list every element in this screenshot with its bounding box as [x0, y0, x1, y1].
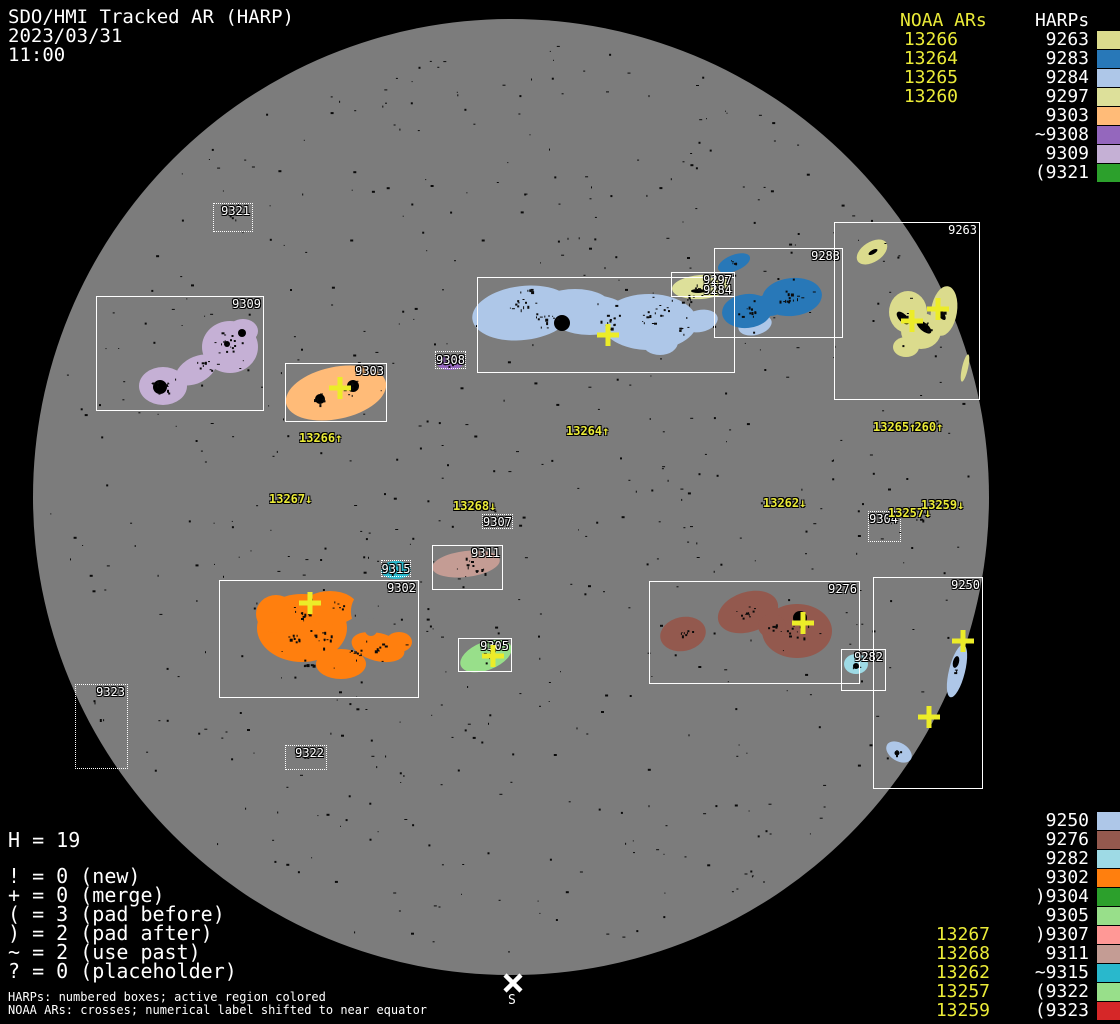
harp-color-swatch — [1097, 164, 1120, 182]
harp-color-swatch — [1097, 850, 1120, 868]
harp-box-9308: 9308 — [435, 351, 466, 369]
harp-number: 9284 — [958, 68, 1089, 87]
harp-color-swatch — [1097, 812, 1120, 830]
harp-box-label: 9263 — [948, 224, 977, 236]
harp-box-label: 9322 — [295, 747, 324, 759]
noaa-label-13266: 13266↑ — [299, 431, 342, 445]
harp-number: )9304 — [990, 887, 1089, 906]
harp-legend-row: 13259(9323 — [880, 1001, 1120, 1020]
noaa-label-13268: 13268↓ — [453, 499, 496, 513]
noaa-ar-number: 13268 — [880, 944, 990, 963]
harp-number: (9323 — [990, 1001, 1089, 1020]
harp-color-swatch — [1097, 88, 1120, 106]
noaa-label-13264: 13264↑ — [566, 424, 609, 438]
harp-box-9302: 9302 — [219, 580, 419, 698]
harp-box-9250: 9250 — [873, 577, 983, 789]
harp-number: 9283 — [958, 49, 1089, 68]
harp-box-9315: 9315 — [381, 560, 411, 577]
harp-legend-row: 13257(9322 — [880, 982, 1120, 1001]
harp-color-swatch — [1097, 926, 1120, 944]
harp-box-9321: 9321 — [213, 203, 253, 232]
harp-color-swatch — [1097, 145, 1120, 163]
harp-number: 9302 — [990, 868, 1089, 887]
harp-legend-row: 132689311 — [880, 944, 1120, 963]
harp-color-swatch — [1097, 69, 1120, 87]
harp-legend-row: 9250 — [880, 811, 1120, 830]
header: SDO/HMI Tracked AR (HARP) 2023/03/31 11:… — [8, 8, 294, 65]
harp-color-swatch — [1097, 31, 1120, 49]
harp-box-label: 9315 — [382, 563, 411, 575]
flag-stat-line: ? = 0 (placeholder) — [8, 962, 237, 981]
harp-number: 9303 — [958, 106, 1089, 125]
harps-column-header: HARPs — [1035, 11, 1089, 30]
harp-box-9309: 9309 — [96, 296, 264, 411]
solar-harp-map: 9321 9309 9303 9308 9284 9297 9283 9263 … — [0, 0, 1120, 1024]
harp-box-label: 9250 — [951, 579, 980, 591]
harp-number: ~9308 — [958, 125, 1089, 144]
top-harp-legend: 1326692631326492831326592841326092979303… — [880, 30, 1120, 182]
harp-number: (9322 — [990, 982, 1089, 1001]
harp-box-9303: 9303 — [285, 363, 387, 422]
noaa-ars-column-header: NOAA ARs — [900, 11, 987, 30]
harp-box-label: 9309 — [232, 298, 261, 310]
harp-number: ~9315 — [990, 963, 1089, 982]
harp-legend-row: 9309 — [880, 144, 1120, 163]
time-label: 11:00 — [8, 46, 294, 65]
harp-legend-row: 132609297 — [880, 87, 1120, 106]
harp-color-swatch — [1097, 50, 1120, 68]
harp-number: 9276 — [990, 830, 1089, 849]
harp-box-9283: 9283 — [714, 248, 843, 338]
noaa-label-13267: 13267↓ — [269, 492, 312, 506]
harp-number: )9307 — [990, 925, 1089, 944]
footer: HARPs: numbered boxes; active region col… — [8, 991, 427, 1017]
harp-number: 9305 — [990, 906, 1089, 925]
south-pole-label: S — [508, 993, 516, 1008]
harp-legend-row: 9303 — [880, 106, 1120, 125]
harp-box-9311: 9311 — [432, 545, 503, 590]
harp-color-swatch — [1097, 1002, 1120, 1020]
harp-color-swatch — [1097, 964, 1120, 982]
harp-box-9305: 9305 — [458, 638, 512, 672]
harp-legend-row: 9302 — [880, 868, 1120, 887]
harp-color-swatch — [1097, 907, 1120, 925]
harp-number: (9321 — [958, 163, 1089, 182]
harp-number: 9263 — [958, 30, 1089, 49]
noaa-label-13262: 13262↓ — [763, 496, 806, 510]
harp-box-label: 9305 — [480, 640, 509, 652]
harp-color-swatch — [1097, 126, 1120, 144]
noaa-ar-number: 13257 — [880, 982, 990, 1001]
harp-color-swatch — [1097, 945, 1120, 963]
south-pole-x-marker — [505, 975, 521, 991]
noaa-ar-number: 13267 — [880, 925, 990, 944]
harp-legend-row: 9305 — [880, 906, 1120, 925]
harp-box-label: 9323 — [96, 686, 125, 698]
harp-legend-row: ~9308 — [880, 125, 1120, 144]
harp-legend-row: 132649283 — [880, 49, 1120, 68]
harp-legend-row: 13267)9307 — [880, 925, 1120, 944]
noaa-ar-number: 13259 — [880, 1001, 990, 1020]
harp-box-9307: 9307 — [482, 514, 513, 529]
harp-color-swatch — [1097, 983, 1120, 1001]
noaa-ar-number: 13262 — [880, 963, 990, 982]
harp-box-label: 9303 — [355, 365, 384, 377]
footer-line-noaa: NOAA ARs: crosses; numerical label shift… — [8, 1004, 427, 1016]
harp-box-9323: 9323 — [75, 684, 128, 769]
noaa-ar-number: 13265 — [880, 68, 958, 87]
harp-box-label: 9276 — [828, 583, 857, 595]
harp-legend-row: 9282 — [880, 849, 1120, 868]
noaa-ar-number: 13260 — [880, 87, 958, 106]
harp-legend-row: (9321 — [880, 163, 1120, 182]
harp-box-label: 9308 — [436, 354, 465, 366]
noaa-label-13259: 13259↓ — [921, 498, 964, 512]
harp-box-label: 9307 — [483, 516, 512, 528]
bottom-harp-legend: 9250927692829302)9304930513267)930713268… — [880, 811, 1120, 1020]
harp-legend-row: 132669263 — [880, 30, 1120, 49]
harp-color-swatch — [1097, 831, 1120, 849]
harp-legend-row: 13262~9315 — [880, 963, 1120, 982]
flag-stats: ! = 0 (new)+ = 0 (merge)( = 3 (pad befor… — [8, 867, 237, 981]
noaa-label-13265: 13265↑ — [873, 420, 916, 434]
noaa-ar-number: 13266 — [880, 30, 958, 49]
harp-box-label: 9321 — [221, 205, 250, 217]
footer-line-harps: HARPs: numbered boxes; active region col… — [8, 991, 427, 1003]
harp-legend-row: 9276 — [880, 830, 1120, 849]
noaa-ar-number: 13264 — [880, 49, 958, 68]
harp-number: 9309 — [958, 144, 1089, 163]
noaa-label-13260: 13260↑ — [914, 420, 944, 434]
harp-number: 9282 — [990, 849, 1089, 868]
harp-color-swatch — [1097, 888, 1120, 906]
solar-disk — [33, 19, 989, 975]
harp-box-label: 9311 — [471, 547, 500, 559]
harp-box-9263: 9263 — [834, 222, 980, 400]
harp-color-swatch — [1097, 107, 1120, 125]
harp-number: 9297 — [958, 87, 1089, 106]
harp-legend-row: )9304 — [880, 887, 1120, 906]
harp-legend-row: 132659284 — [880, 68, 1120, 87]
harp-color-swatch — [1097, 869, 1120, 887]
harp-box-9322: 9322 — [285, 745, 327, 770]
harp-number: 9250 — [990, 811, 1089, 830]
harp-box-label: 9302 — [387, 582, 416, 594]
harp-number: 9311 — [990, 944, 1089, 963]
harp-box-9276: 9276 — [649, 581, 860, 684]
harp-count: H = 19 — [8, 830, 80, 850]
